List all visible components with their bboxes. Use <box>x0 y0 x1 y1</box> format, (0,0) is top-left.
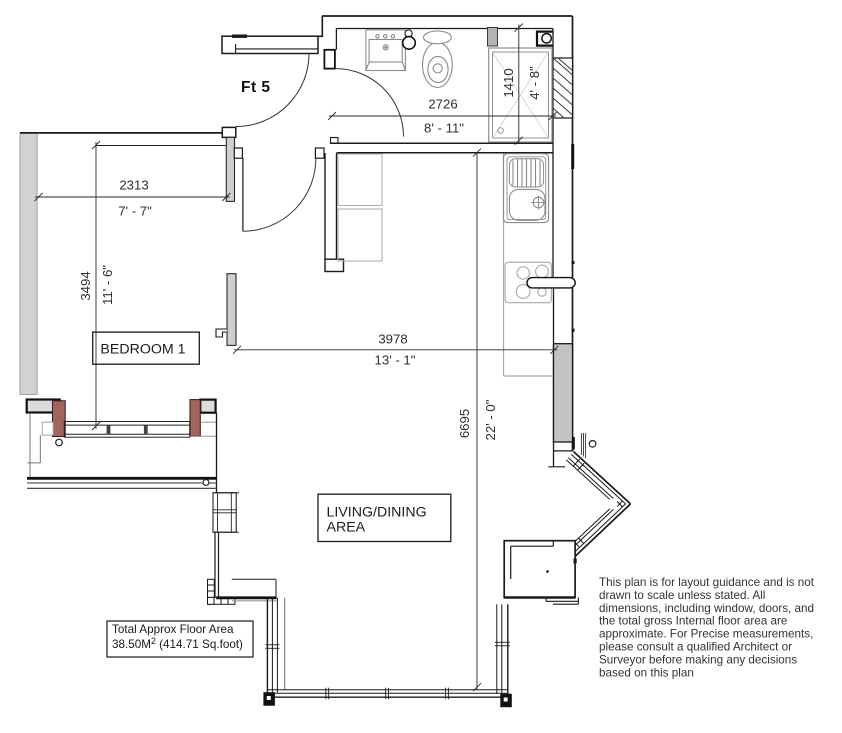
svg-text:38.50M2 (414.71 Sq.foot): 38.50M2 (414.71 Sq.foot) <box>112 636 243 651</box>
svg-text:Ft 5: Ft 5 <box>241 79 271 96</box>
svg-text:7' - 7": 7' - 7" <box>118 204 152 219</box>
svg-text:2726: 2726 <box>428 97 457 112</box>
svg-text:dimensions, including window,: dimensions, including window, doors, and <box>599 602 814 615</box>
svg-text:3978: 3978 <box>378 332 407 347</box>
svg-text:based on this plan: based on this plan <box>599 666 694 679</box>
svg-text:13' - 1": 13' - 1" <box>375 353 416 368</box>
svg-text:This plan is for layout guidan: This plan is for layout guidance and is … <box>599 576 815 589</box>
svg-text:AREA: AREA <box>327 520 366 536</box>
svg-text:3494: 3494 <box>78 271 93 300</box>
svg-text:1410: 1410 <box>501 68 516 97</box>
svg-text:8' - 11": 8' - 11" <box>424 121 464 136</box>
svg-text:4' - 8": 4' - 8" <box>527 66 542 100</box>
svg-text:Total Approx Floor Area: Total Approx Floor Area <box>112 623 234 636</box>
svg-text:6695: 6695 <box>457 409 472 438</box>
svg-text:approximate. For Precise measu: approximate. For Precise measurements, <box>599 628 813 641</box>
svg-text:drawn to scale unless stated.: drawn to scale unless stated. All <box>599 589 765 602</box>
svg-text:11' - 6": 11' - 6" <box>100 265 115 305</box>
svg-text:LIVING/DINING: LIVING/DINING <box>327 505 427 521</box>
svg-text:22' - 0": 22' - 0" <box>483 399 498 440</box>
svg-text:the total gross Internal floor: the total gross Internal floor area are <box>599 615 787 628</box>
svg-text:Surveyor before making any dec: Surveyor before making any decisions <box>599 653 797 666</box>
svg-text:BEDROOM 1: BEDROOM 1 <box>100 342 185 358</box>
svg-text:2313: 2313 <box>119 178 148 193</box>
svg-text:please consult a qualified Arc: please consult a qualified Architect or <box>599 641 792 654</box>
